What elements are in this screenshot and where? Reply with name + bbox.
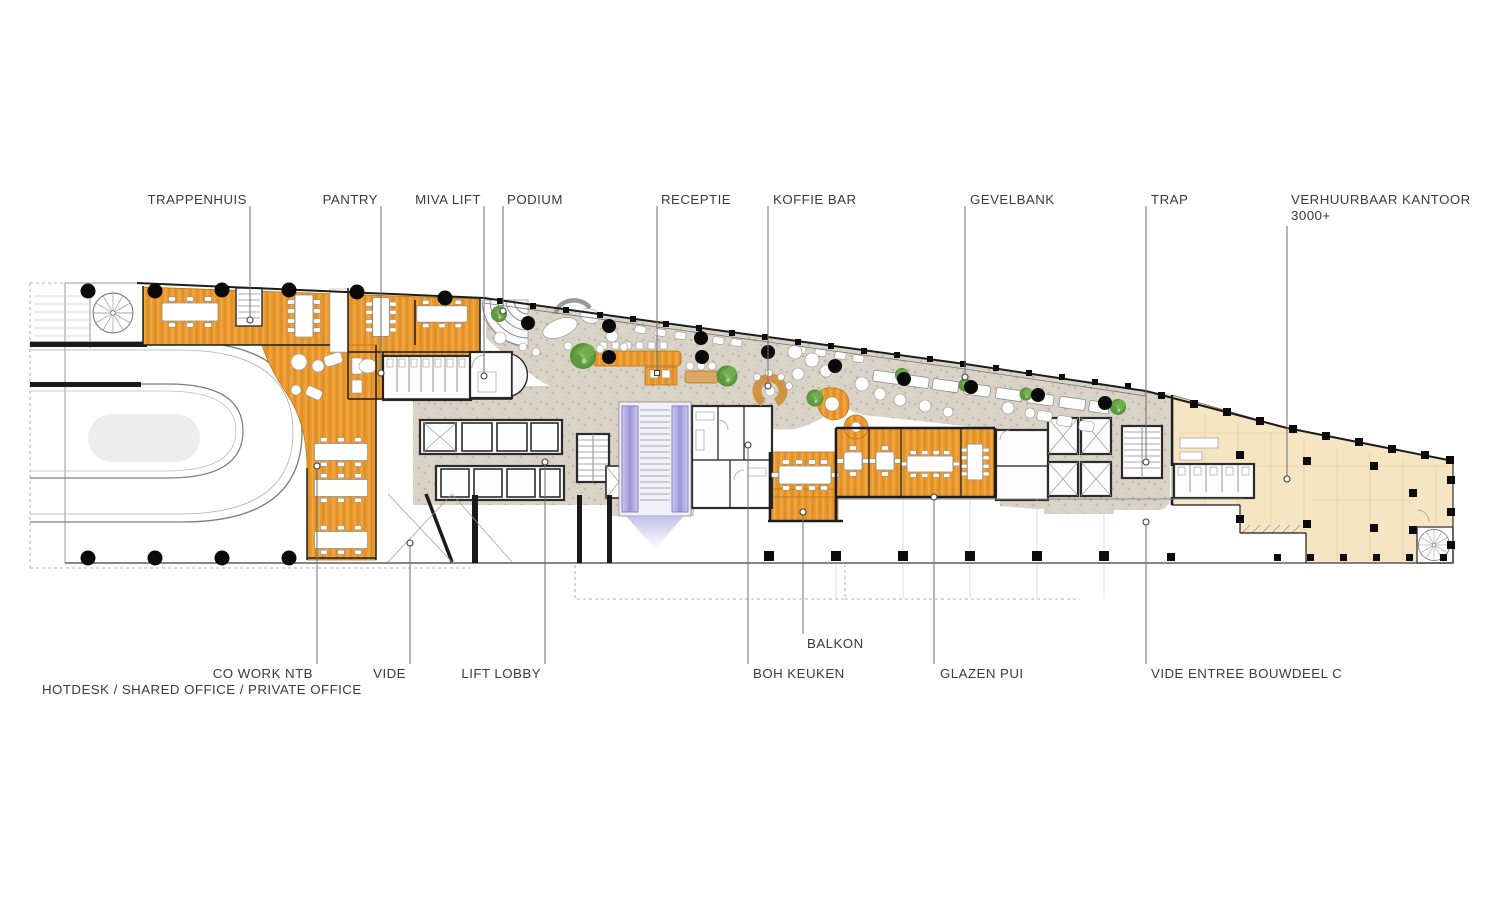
label-trappenhuis: TRAPPENHUIS (147, 192, 247, 207)
trap-stair (1122, 426, 1162, 478)
toilets-right (1174, 464, 1254, 498)
label-podium: PODIUM (507, 192, 563, 207)
label-vide: VIDE (373, 666, 406, 681)
floorplan-canvas: TRAPPENHUIS PANTRY MIVA LIFT PODIUM RECE… (0, 0, 1500, 920)
label-receptie: RECEPTIE (661, 192, 731, 207)
label-boh-keuken: BOH KEUKEN (753, 666, 845, 681)
label-gevelbank: GEVELBANK (970, 192, 1055, 207)
label-miva-lift: MIVA LIFT (415, 192, 481, 207)
label-koffie-bar: KOFFIE BAR (773, 192, 857, 207)
label-balkon: BALKON (807, 636, 864, 651)
label-verhuurbaar-kantoor-size: 3000+ (1291, 208, 1331, 223)
label-trap: TRAP (1151, 192, 1188, 207)
label-lift-lobby: LIFT LOBBY (461, 666, 541, 681)
label-hotdesk-shared-private: HOTDESK / SHARED OFFICE / PRIVATE OFFICE (42, 682, 362, 697)
spiral-stair-left (93, 293, 133, 333)
toilets-main (383, 356, 471, 400)
miva-lift-room (470, 352, 527, 398)
boh-keuken-rooms (692, 406, 772, 508)
label-co-work-ntb: CO WORK NTB (213, 666, 313, 681)
floor-plan-drawing (0, 0, 1500, 920)
label-verhuurbaar-kantoor: VERHUURBAAR KANTOOR (1291, 192, 1471, 207)
label-pantry: PANTRY (323, 192, 378, 207)
corridor-gap (330, 289, 348, 352)
label-glazen-pui: GLAZEN PUI (940, 666, 1024, 681)
label-vide-entree-bouwdeel-c: VIDE ENTREE BOUWDEEL C (1151, 666, 1342, 681)
rooms-mid-right (996, 430, 1048, 500)
